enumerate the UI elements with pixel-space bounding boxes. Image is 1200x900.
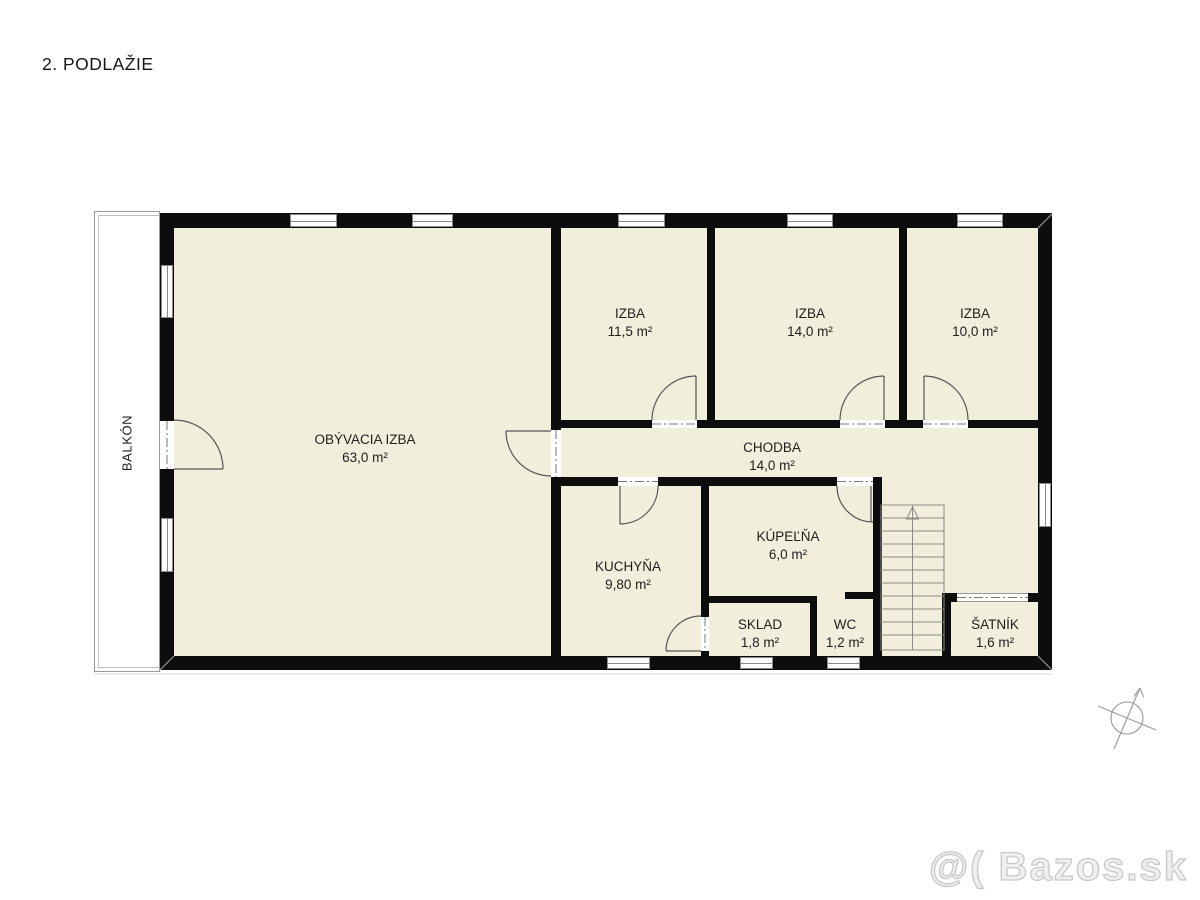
door-opening (701, 617, 709, 651)
door-opening (923, 420, 968, 428)
door-opening (160, 421, 174, 469)
wall-segment (810, 596, 817, 656)
watermark-bazos: @( Bazos.sk (929, 845, 1188, 890)
wall-segment (1028, 593, 1038, 602)
wall-segment (899, 228, 907, 428)
room-label-chodba: CHODBA 14,0 m² (743, 439, 801, 475)
wall-segment (709, 596, 817, 603)
wall-segment (873, 477, 882, 656)
window (412, 214, 453, 227)
room-label-izba-2: IZBA 14,0 m² (787, 305, 833, 341)
window (740, 657, 773, 669)
plan-title: 2. PODLAŽIE (42, 54, 154, 75)
room-label-kupelna: KÚPEĽŇA 6,0 m² (756, 528, 819, 564)
wall-segment (942, 593, 951, 656)
wall-segment (845, 592, 873, 599)
window (607, 657, 650, 669)
compass-north-icon (1098, 688, 1156, 749)
door-opening (618, 477, 658, 486)
room-label-satnik: ŠATNÍK 1,6 m² (971, 616, 1019, 652)
wall-segment (174, 656, 1038, 670)
window (618, 214, 665, 227)
balcony-label: BALKÓN (120, 415, 135, 471)
room-label-kuchyna: KUCHYŇA 9,80 m² (595, 558, 661, 594)
window (161, 265, 173, 318)
window (1039, 483, 1051, 527)
room-label-sklad: SKLAD 1,8 m² (738, 616, 782, 652)
window (161, 518, 173, 572)
window (290, 214, 337, 227)
door-opening (652, 420, 697, 428)
wardrobe-window (957, 593, 1028, 602)
door-opening (840, 420, 885, 428)
room-label-wc: WC 1,2 m² (826, 616, 864, 652)
room-label-obyvacia-izba: OBÝVACIA IZBA 63,0 m² (314, 431, 415, 467)
floor-plan-page: 2. PODLAŽIE BALKÓN (0, 0, 1200, 900)
wall-segment (707, 228, 715, 428)
room-label-izba-1: IZBA 11,5 m² (608, 305, 653, 341)
wall-segment (561, 477, 873, 486)
window (787, 214, 833, 227)
door-opening (551, 430, 561, 477)
window (957, 214, 1003, 227)
wall-segment (942, 593, 957, 602)
door-opening (837, 477, 873, 486)
window (827, 657, 860, 669)
wall-segment (1038, 228, 1052, 670)
room-label-izba-3: IZBA 10,0 m² (952, 305, 998, 341)
